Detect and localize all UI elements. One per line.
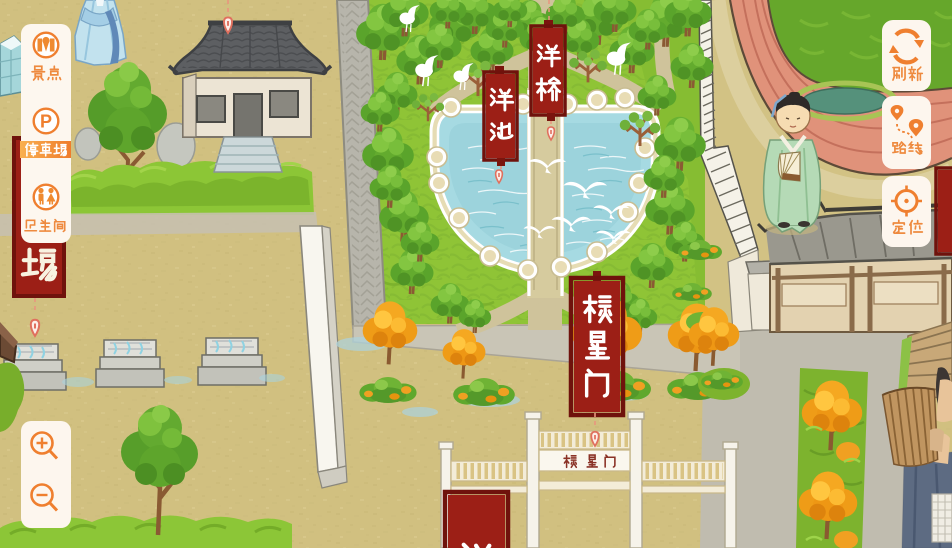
svg-text:P: P (40, 112, 52, 132)
